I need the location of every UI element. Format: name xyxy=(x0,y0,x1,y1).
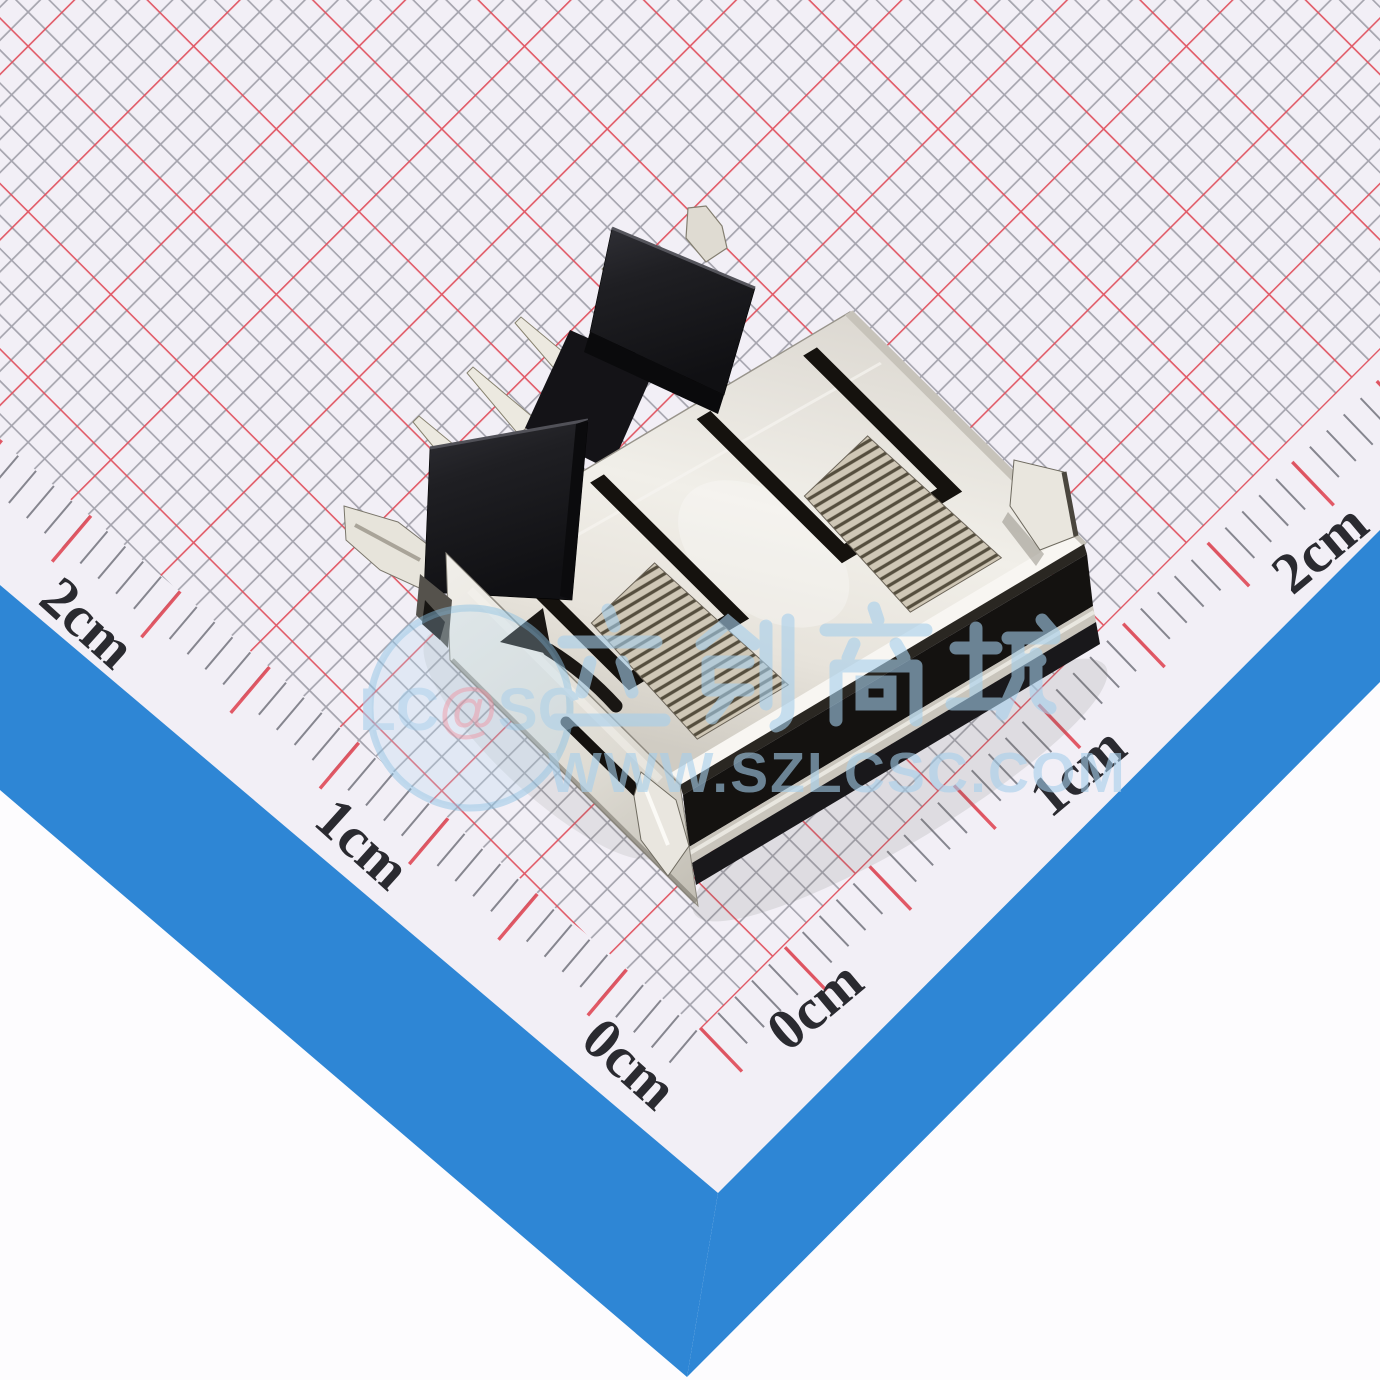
logo-prefix: LC xyxy=(359,676,439,743)
product-photo: 2cm 1cm 0cm 0cm 1cm 2cm xyxy=(0,0,1380,1380)
cn-glyph-shang xyxy=(826,608,926,720)
logo-suffix: SC xyxy=(498,676,581,743)
watermark-logo-text: LC@SC xyxy=(359,676,581,743)
logo-at: @ xyxy=(439,676,498,743)
photo-canvas: 2cm 1cm 0cm 0cm 1cm 2cm xyxy=(0,0,1380,1380)
watermark-url: WWW.SZLCSC.COM xyxy=(548,741,1127,805)
